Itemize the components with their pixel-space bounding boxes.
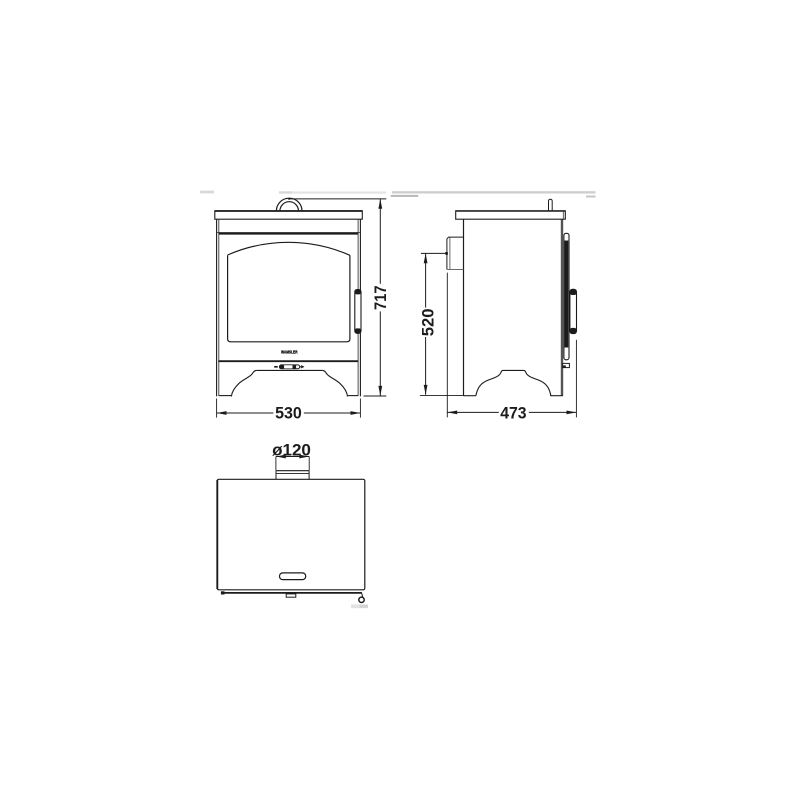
svg-text:WAMSLER: WAMSLER [281, 349, 298, 354]
svg-text:473: 473 [500, 404, 526, 423]
svg-text:530: 530 [275, 404, 302, 423]
svg-text:520: 520 [419, 309, 438, 337]
svg-text:717: 717 [371, 285, 390, 310]
